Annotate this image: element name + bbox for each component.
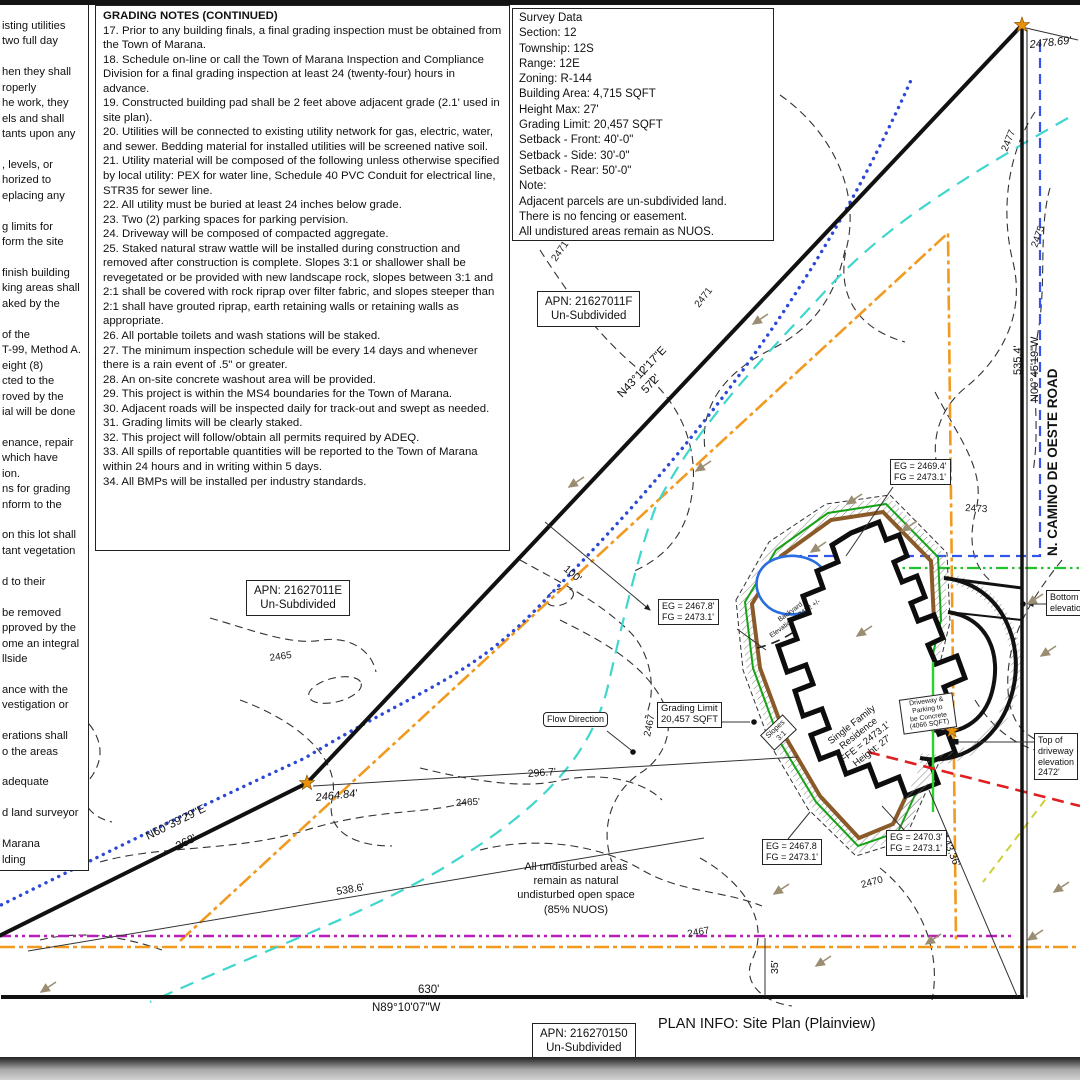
left-note-line: adequate [0, 775, 88, 790]
survey-data-line: Setback - Front: 40'-0" [519, 133, 767, 148]
grading-note-item: 32. This project will follow/obtain all … [103, 431, 503, 446]
yellow-dashed-line [983, 800, 1045, 882]
left-note-line: on this lot shall [0, 528, 88, 543]
bearing-south-label: N89°10'07"W [372, 1002, 441, 1014]
plan-info-title: PLAN INFO: Site Plan (Plainview) [658, 1016, 876, 1032]
svg-text:2471: 2471 [693, 285, 716, 310]
left-note-line: g limits for [0, 220, 88, 235]
svg-text:2471: 2471 [549, 239, 571, 264]
left-note-line: cted to the [0, 374, 88, 389]
left-note-line: which have [0, 451, 88, 466]
spot-elev-w-label: 2464.84' [314, 788, 359, 805]
grading-note-item: 25. Staked natural straw wattle will be … [103, 242, 503, 329]
bottom-of-driveway-callout-clipped: Bottom of elevation [1046, 590, 1080, 616]
left-note-line: form the site [0, 235, 88, 250]
svg-text:2470: 2470 [860, 874, 885, 890]
left-note-line: be removed [0, 606, 88, 621]
apn-number: APN: 216270150 [540, 1027, 628, 1041]
spot-grade-callout-ne: EG = 2469.4'FG = 2473.1' [890, 459, 951, 485]
dim-35-label: 35' [769, 960, 781, 974]
svg-text:2467: 2467 [642, 713, 657, 737]
left-note-line [0, 760, 88, 775]
grading-notes-list: 17. Prior to any building finals, a fina… [103, 24, 503, 490]
left-note-line: llside [0, 652, 88, 667]
dim-296-label: 296.7' [527, 766, 556, 780]
apn-box-west: APN: 21627011E Un-Subdivided [246, 580, 350, 616]
survey-data-line: Section: 12 [519, 26, 767, 41]
road-name-label: N. CAMINO DE OESTE ROAD [1045, 368, 1060, 556]
left-note-line: enance, repair [0, 436, 88, 451]
grading-note-item: 22. All utility must be buried at least … [103, 198, 503, 213]
spot-elev-ne-label: 2478.69' [1028, 35, 1073, 52]
apn-status: Un-Subdivided [254, 598, 342, 612]
apn-number: APN: 21627011E [254, 584, 342, 598]
left-note-line: lding [0, 853, 88, 868]
grading-note-item: 20. Utilities will be connected to exist… [103, 125, 503, 154]
bearing-east-label: N00°45'19"W [1029, 336, 1041, 402]
grading-note-item: 31. Grading limits will be clearly stake… [103, 416, 503, 431]
grading-note-item: 19. Constructed building pad shall be 2 … [103, 96, 503, 125]
grading-note-item: 21. Utility material will be composed of… [103, 154, 503, 198]
distance-535-label: 535.4' [1012, 345, 1024, 375]
left-note-line: eight (8) [0, 359, 88, 374]
left-note-line [0, 559, 88, 574]
survey-data-line: There is no fencing or easement. [519, 210, 767, 225]
spot-grade-callout-s: EG = 2467.8FG = 2473.1' [762, 839, 822, 865]
grading-note-item: 34. All BMPs will be installed per indus… [103, 475, 503, 490]
driveway-concrete-note: Driveway & Parking to be Concrete (4066 … [899, 692, 957, 734]
survey-data-line: Note: [519, 179, 767, 194]
left-note-line [0, 251, 88, 266]
grading-note-item: 24. Driveway will be composed of compact… [103, 227, 503, 242]
left-note-line: ion. [0, 467, 88, 482]
left-note-line: eplacing any [0, 189, 88, 204]
survey-data-line: Setback - Rear: 50'-0" [519, 164, 767, 179]
left-note-line: pproved by the [0, 621, 88, 636]
grading-note-item: 29. This project is within the MS4 bound… [103, 387, 503, 402]
left-note-line [0, 590, 88, 605]
svg-text:2465': 2465' [456, 797, 481, 809]
grading-note-item: 28. An on-site concrete washout area wil… [103, 373, 503, 388]
survey-data-line: Building Area: 4,715 SQFT [519, 87, 767, 102]
left-note-line: tants upon any [0, 127, 88, 142]
left-note-line: isting utilities [0, 19, 88, 34]
svg-text:2467: 2467 [687, 925, 711, 940]
survey-data-line: Survey Data [519, 11, 767, 26]
left-note-line: els and shall [0, 112, 88, 127]
left-note-line [0, 143, 88, 158]
grading-note-item: 18. Schedule on-line or call the Town of… [103, 53, 503, 97]
apn-number: APN: 21627011F [545, 295, 632, 309]
left-note-line [0, 714, 88, 729]
survey-data-line: Grading Limit: 20,457 SQFT [519, 118, 767, 133]
grading-notes-box: GRADING NOTES (CONTINUED) 17. Prior to a… [95, 5, 510, 551]
distance-268-label: 268' [174, 832, 198, 852]
left-note-line: T-99, Method A. [0, 343, 88, 358]
left-note-line [0, 50, 88, 65]
left-note-line [0, 822, 88, 837]
left-note-line: ns for grading [0, 482, 88, 497]
left-note-line: finish building [0, 266, 88, 281]
left-note-line: ial will be done [0, 405, 88, 420]
grading-note-item: 33. All spills of reportable quantities … [103, 445, 503, 474]
left-note-line [0, 513, 88, 528]
left-note-line [0, 667, 88, 682]
svg-text:2475: 2475 [1029, 224, 1047, 249]
left-note-line: d to their [0, 575, 88, 590]
survey-data-line: Adjacent parcels are un-subdivided land. [519, 195, 767, 210]
left-note-line: aked by the [0, 297, 88, 312]
left-note-line: of the [0, 328, 88, 343]
grading-note-item: 26. All portable toilets and wash statio… [103, 329, 503, 344]
left-note-line: Marana [0, 837, 88, 852]
apn-status: Un-Subdivided [545, 309, 632, 323]
left-note-line: ome an integral [0, 637, 88, 652]
apn-status: Un-Subdivided [540, 1041, 628, 1055]
survey-data-line: All undistured areas remain as NUOS. [519, 225, 767, 240]
top-border-bar [0, 0, 1080, 5]
left-note-line: horized to [0, 173, 88, 188]
svg-text:2465: 2465 [269, 650, 293, 664]
left-note-line: two full day [0, 34, 88, 49]
survey-data-line: Township: 12S [519, 42, 767, 57]
survey-data-line: Setback - Side: 30'-0" [519, 149, 767, 164]
left-note-line: roperly [0, 81, 88, 96]
distance-630-label: 630' [418, 984, 439, 996]
left-note-line: ance with the [0, 683, 88, 698]
survey-data-line: Height Max: 27' [519, 103, 767, 118]
survey-data-line: Range: 12E [519, 57, 767, 72]
grading-note-item: 30. Adjacent roads will be inspected dai… [103, 402, 503, 417]
apn-box-south: APN: 216270150 Un-Subdivided [532, 1023, 636, 1059]
top-of-driveway-callout: Top of driveway elevation 2472' [1034, 733, 1078, 780]
left-note-line: hen they shall [0, 65, 88, 80]
spot-grade-callout-w: EG = 2467.8'FG = 2473.1' [658, 599, 719, 625]
left-note-line: nform to the [0, 498, 88, 513]
grading-note-item: 23. Two (2) parking spaces for parking p… [103, 213, 503, 228]
left-note-line: o the areas [0, 745, 88, 760]
left-note-line [0, 312, 88, 327]
left-note-line: d land surveyor [0, 806, 88, 821]
left-note-line: erations shall [0, 729, 88, 744]
left-notes-column-partial: isting utilitiestwo full dayhen they sha… [0, 5, 89, 871]
apn-box-northeast: APN: 21627011F Un-Subdivided [537, 291, 640, 327]
left-note-line [0, 420, 88, 435]
grading-note-item: 17. Prior to any building finals, a fina… [103, 24, 503, 53]
left-note-line: vestigation or [0, 698, 88, 713]
grading-notes-title: GRADING NOTES (CONTINUED) [103, 9, 503, 24]
flow-direction-callout: Flow Direction [543, 712, 608, 727]
left-note-line [0, 791, 88, 806]
svg-text:2477: 2477 [1000, 128, 1019, 153]
nuos-open-space-note: All undisturbed areas remain as natural … [482, 860, 670, 917]
survey-data-box: Survey DataSection: 12Township: 12SRange… [512, 8, 774, 241]
grading-note-item: 27. The minimum inspection schedule will… [103, 344, 503, 373]
left-note-line: king areas shall [0, 281, 88, 296]
left-note-line: , levels, or [0, 158, 88, 173]
left-note-line [0, 204, 88, 219]
bottom-taskbar-strip [0, 1057, 1080, 1080]
left-note-line: tant vegetation [0, 544, 88, 559]
site-plan-sheet: N43°12'17"E 572' N60°39'29"E 268' N00°45… [0, 0, 1080, 1080]
left-note-line: he work, they [0, 96, 88, 111]
spot-grade-callout-se: EG = 2470.3'FG = 2473.1' [886, 830, 947, 856]
svg-text:2473: 2473 [965, 503, 988, 515]
survey-data-line: Zoning: R-144 [519, 72, 767, 87]
left-note-line: roved by the [0, 390, 88, 405]
grading-limit-callout: Grading Limit20,457 SQFT [657, 702, 722, 728]
